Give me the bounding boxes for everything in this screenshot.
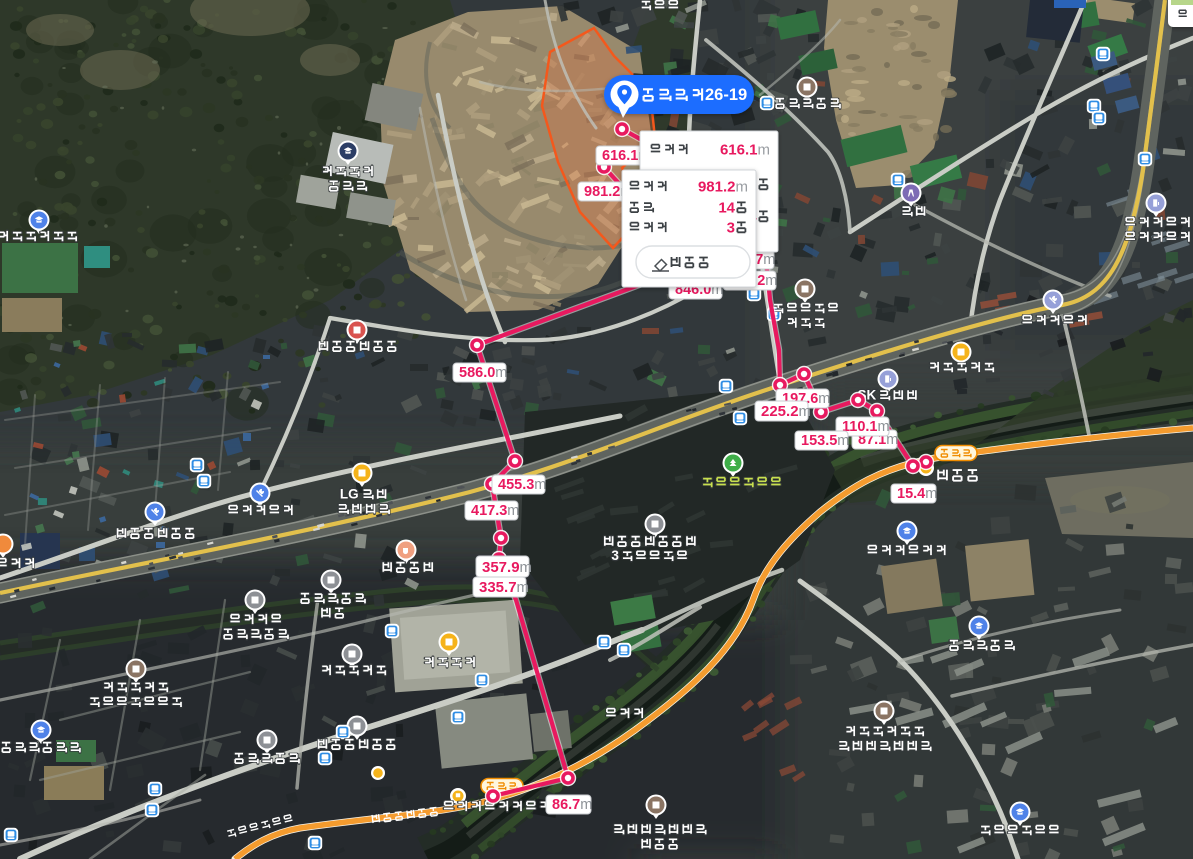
svg-text:357.9m: 357.9m: [482, 559, 532, 576]
svg-text:3: 3: [611, 548, 619, 563]
svg-text:LG: LG: [340, 487, 359, 502]
svg-text:26-19: 26-19: [705, 86, 747, 104]
svg-text:86.7m: 86.7m: [552, 797, 592, 813]
svg-text:616.1m: 616.1m: [720, 141, 770, 158]
svg-text:586.0m: 586.0m: [459, 365, 507, 381]
svg-text:225.2m: 225.2m: [761, 403, 811, 420]
svg-text:417.3m: 417.3m: [471, 503, 519, 519]
svg-text:981.2m: 981.2m: [698, 178, 748, 195]
svg-text:153.5m: 153.5m: [801, 433, 849, 449]
svg-text:14: 14: [718, 199, 735, 216]
svg-text:335.7m: 335.7m: [479, 579, 529, 596]
svg-text:455.3m: 455.3m: [498, 477, 546, 493]
svg-text:3: 3: [727, 219, 735, 236]
svg-text:15.4m: 15.4m: [897, 486, 937, 502]
